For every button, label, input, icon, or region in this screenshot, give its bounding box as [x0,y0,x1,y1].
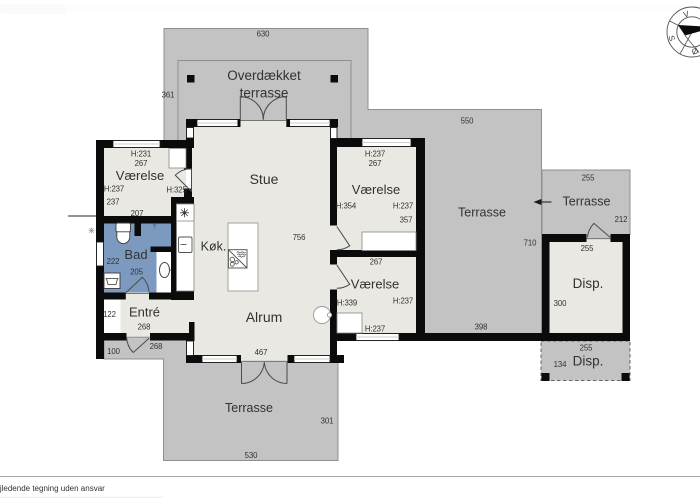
svg-text:255: 255 [580,344,593,353]
svg-text:Vejledende tegning uden ansvar: Vejledende tegning uden ansvar [0,484,105,493]
svg-text:Entré: Entré [129,305,160,320]
svg-text:H:237: H:237 [393,202,413,211]
svg-text:710: 710 [524,239,537,248]
svg-text:398: 398 [475,323,488,332]
svg-text:550: 550 [461,117,474,126]
svg-text:Værelse: Værelse [116,168,164,183]
svg-text:268: 268 [150,342,163,351]
svg-text:267: 267 [369,159,382,168]
svg-text:357: 357 [400,216,413,225]
svg-text:Alrum: Alrum [246,309,283,325]
svg-text:530: 530 [245,451,258,460]
svg-text:255: 255 [581,244,594,253]
svg-text:122: 122 [103,310,116,319]
svg-text:H:237: H:237 [104,185,124,194]
svg-text:207: 207 [131,209,144,218]
svg-text:361: 361 [162,91,175,100]
svg-text:630: 630 [257,30,270,39]
svg-text:134: 134 [554,360,567,369]
svg-text:Terrasse: Terrasse [458,206,506,220]
svg-text:H:325: H:325 [166,186,187,195]
svg-text:Disp.: Disp. [573,354,604,369]
svg-text:Bad: Bad [124,247,147,262]
svg-text:H:237: H:237 [365,150,385,159]
svg-text:Overdækket: Overdækket [227,68,301,83]
svg-text:237: 237 [107,198,120,207]
svg-text:Værelse: Værelse [351,277,399,292]
svg-text:H:231: H:231 [131,150,151,159]
svg-text:Terrasse: Terrasse [563,195,611,209]
svg-text:300: 300 [554,299,567,308]
svg-text:Stue: Stue [250,171,279,187]
svg-text:756: 756 [293,233,306,242]
svg-text:terrasse: terrasse [240,86,289,101]
svg-text:Køk.: Køk. [201,240,227,254]
svg-text:212: 212 [615,215,628,224]
svg-text:205: 205 [130,268,143,277]
svg-text:467: 467 [255,348,268,357]
svg-text:267: 267 [370,258,383,267]
svg-text:Disp.: Disp. [573,276,604,291]
svg-text:Værelse: Værelse [352,182,400,197]
svg-text:H:237: H:237 [393,297,413,306]
svg-text:268: 268 [138,323,151,332]
svg-text:222: 222 [107,257,120,266]
svg-text:255: 255 [582,174,595,183]
svg-text:267: 267 [135,159,148,168]
svg-text:Terrasse: Terrasse [225,401,273,415]
svg-text:301: 301 [321,417,334,426]
svg-text:H:237: H:237 [365,325,385,334]
svg-text:100: 100 [107,347,120,356]
svg-text:H:354: H:354 [336,202,357,211]
svg-text:H:339: H:339 [337,299,357,308]
